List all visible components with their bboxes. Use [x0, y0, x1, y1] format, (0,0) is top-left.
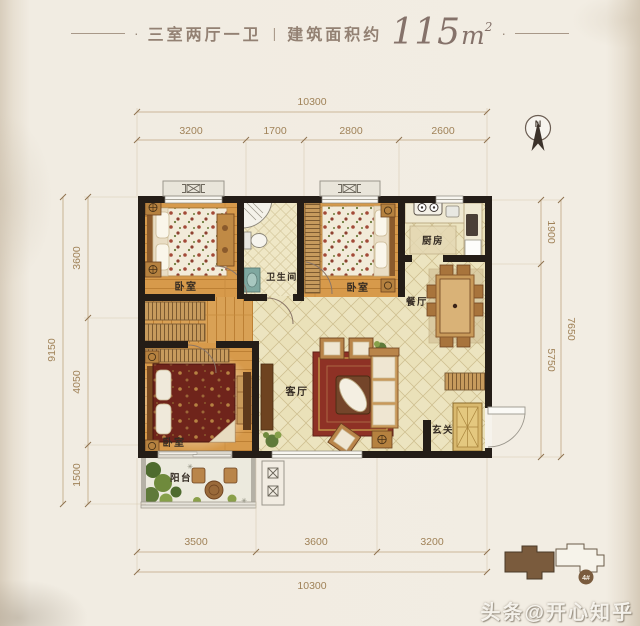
dim-top-total: 10300 — [297, 96, 326, 108]
compass-north-icon: N — [526, 116, 551, 152]
kitchen-label: 厨房 — [422, 235, 444, 247]
dining-furniture — [427, 265, 483, 347]
tv-cabinet — [243, 372, 251, 430]
pillow — [375, 242, 387, 268]
wardrobe — [305, 203, 320, 293]
oven — [466, 214, 478, 236]
entry-wall-stub — [423, 420, 431, 458]
dim-right-total: 7650 — [565, 317, 577, 341]
nightstand — [145, 351, 159, 363]
door-leaf — [488, 407, 525, 414]
kitchen-furniture — [405, 200, 482, 258]
dining-label: 餐厅 — [405, 296, 428, 308]
dining-chair — [440, 265, 453, 275]
closet — [143, 302, 205, 320]
toilet-icon — [244, 232, 251, 249]
bed-headboard — [147, 366, 153, 440]
balcony-rail — [251, 458, 256, 508]
entry-door — [485, 407, 525, 448]
dim-left-3: 1500 — [71, 463, 83, 487]
balcony-label: 阳台 — [170, 472, 192, 484]
bedroom1-label: 卧室 — [175, 280, 198, 293]
dim-bottom-2: 3600 — [304, 536, 328, 548]
dim-right-1: 1900 — [545, 220, 557, 244]
balcony-chair — [224, 468, 237, 483]
dim-bottom-1: 3500 — [184, 536, 208, 548]
balcony-table — [205, 481, 223, 499]
dim-top-3: 2800 — [339, 125, 363, 137]
tv-cabinet — [261, 364, 273, 430]
sink-icon — [446, 206, 459, 217]
dim-top-2: 1700 — [263, 125, 287, 137]
dim-left-2: 4050 — [71, 370, 83, 394]
pillow — [156, 370, 171, 400]
closet — [143, 324, 205, 341]
building-key-plan: 4# — [505, 544, 604, 585]
adjacent-building — [556, 544, 604, 572]
dim-bottom-3: 3200 — [420, 536, 444, 548]
highlighted-building — [505, 546, 554, 579]
dim-top-4: 2600 — [431, 125, 455, 137]
dim-left-1: 3600 — [71, 246, 83, 270]
balcony-rail — [141, 458, 146, 508]
dining-chair — [457, 337, 470, 347]
bedroom3-label: 卧室 — [163, 436, 186, 449]
watermark: 头条@开心知乎 — [480, 596, 634, 625]
bedroom2-label: 卧室 — [347, 281, 370, 294]
living-label: 客厅 — [285, 385, 309, 398]
door-arc — [488, 414, 525, 447]
dim-right-2: 5750 — [545, 348, 557, 372]
pillow — [156, 404, 171, 434]
sparkle-icon: ✳ — [187, 463, 193, 471]
bedroom3-furniture — [134, 348, 258, 452]
sparkle-icon: ✳ — [241, 497, 247, 505]
dining-chair — [457, 265, 470, 275]
dresser — [217, 214, 234, 266]
unit-badge-label: 4# — [582, 575, 590, 582]
entry-label: 玄关 — [432, 424, 454, 436]
dining-chair — [440, 337, 453, 347]
bathroom-label: 卫生间 — [266, 271, 298, 282]
shoe-cabinet — [445, 373, 485, 390]
fridge — [465, 240, 481, 257]
dim-top-1: 3200 — [179, 125, 203, 137]
floor-plan-page: · 三室两厅一卫 | 建筑面积约 115m2 · — [0, 0, 640, 626]
sofa-armrest — [369, 348, 399, 356]
nightstand — [381, 279, 395, 292]
nightstand — [145, 440, 159, 452]
dim-left-total: 9150 — [46, 338, 58, 362]
floor-plan-drawing: 卧室 卫生间 卧室 厨房 餐厅 客厅 卧室 玄关 阳台 ✳ ✳ — [0, 0, 640, 626]
pillow — [156, 212, 169, 238]
dim-bottom-total: 10300 — [297, 580, 326, 592]
nightstand — [381, 204, 395, 217]
balcony-chair — [192, 468, 205, 483]
